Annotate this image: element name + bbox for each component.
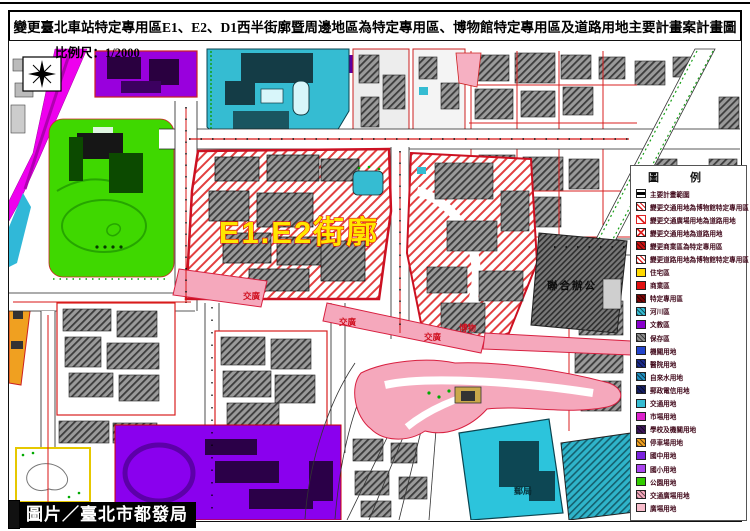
- legend-swatch-icon: [636, 281, 646, 290]
- legend: 圖 例 主要計畫範圍變更交通用地為博物館特定專用區變更交通廣場用地為道路用地變更…: [630, 165, 747, 521]
- legend-item-label: 特定專用區: [650, 293, 683, 303]
- legend-swatch-icon: [636, 215, 646, 224]
- legend-swatch-icon: [636, 490, 646, 499]
- legend-item: 郵政電信用地: [636, 383, 746, 396]
- legend-item: 學校及機關用地: [636, 423, 746, 436]
- legend-item-label: 交通用地: [650, 398, 676, 408]
- city-fabric-bottom-left: [57, 303, 327, 443]
- blocks-right-of-station: [353, 49, 481, 135]
- legend-item: 商業區: [636, 279, 746, 292]
- legend-item-label: 保存區: [650, 333, 670, 343]
- legend-swatch-icon: [636, 372, 646, 381]
- legend-item: 變更交通廣場用地為道路用地: [636, 213, 746, 226]
- legend-item-label: 河川區: [650, 306, 670, 316]
- legend-item: 特定專用區: [636, 292, 746, 305]
- pond-icon: [353, 171, 383, 195]
- legend-item-label: 國中用地: [650, 450, 676, 460]
- legend-item-label: 醫院用地: [650, 359, 676, 369]
- legend-item: 變更商業區為特定專用區: [636, 239, 746, 252]
- credit-notch: [8, 500, 20, 529]
- legend-item-label: 變更交通用地為道路用地: [650, 228, 723, 238]
- legend-swatch-icon: [636, 346, 646, 355]
- legend-item: 保存區: [636, 331, 746, 344]
- transport-plaza-label: 交廣: [243, 291, 261, 301]
- legend-item: 變更道路用地為博物館特定專用區: [636, 252, 746, 265]
- legend-item-label: 停車場用地: [650, 437, 683, 447]
- legend-item: 主要計畫範圍: [636, 187, 746, 200]
- legend-item-label: 變更商業區為特定專用區: [650, 241, 723, 251]
- legend-swatch-icon: [636, 412, 646, 421]
- legend-item: 國小用地: [636, 462, 746, 475]
- museum-block: [407, 153, 537, 347]
- legend-item: 醫院用地: [636, 357, 746, 370]
- legend-item-label: 郵政電信用地: [650, 385, 690, 395]
- joint-office-label: 聯合辦公: [547, 279, 597, 292]
- legend-item: 變更交通用地為博物館特定專用區: [636, 200, 746, 213]
- legend-item-label: 交通廣場用地: [650, 490, 690, 500]
- post-office-block: [459, 419, 563, 520]
- credit-badge: 圖片／臺北市都發局: [20, 502, 196, 528]
- park-area: [49, 119, 174, 279]
- legend-swatch-icon: [636, 503, 646, 512]
- legend-item: 河川區: [636, 305, 746, 318]
- e1e2-block-label: E1.E2街廓: [219, 215, 379, 250]
- legend-item: 機關用地: [636, 344, 746, 357]
- scale-label: 比例尺：1/2000: [55, 42, 140, 61]
- transport-plaza-label: 交廣: [339, 317, 357, 327]
- legend-item: 自來水用地: [636, 370, 746, 383]
- legend-title: 圖 例: [636, 169, 746, 185]
- legend-swatch-icon: [636, 438, 646, 447]
- north-arrow-icon: [23, 57, 61, 91]
- legend-item-label: 文教區: [650, 319, 670, 329]
- station-block-cyan: [207, 49, 349, 141]
- legend-swatch-icon: [636, 333, 646, 342]
- legend-item-label: 變更交通用地為博物館特定專用區: [650, 202, 749, 212]
- legend-swatch-icon: [636, 294, 646, 303]
- legend-item: 住宅區: [636, 266, 746, 279]
- legend-swatch-icon: [636, 359, 646, 368]
- legend-item-label: 主要計畫範圍: [650, 189, 690, 199]
- legend-item: 公園用地: [636, 475, 746, 488]
- legend-swatch-icon: [636, 385, 646, 394]
- legend-rows: 主要計畫範圍變更交通用地為博物館特定專用區變更交通廣場用地為道路用地變更交通用地…: [636, 187, 746, 514]
- legend-item: 市場用地: [636, 410, 746, 423]
- legend-item-label: 自來水用地: [650, 372, 683, 382]
- legend-swatch-icon: [636, 307, 646, 316]
- legend-swatch-icon: [636, 202, 646, 211]
- legend-swatch-icon: [636, 399, 646, 408]
- legend-item-label: 國小用地: [650, 464, 676, 474]
- legend-item-label: 學校及機關用地: [650, 424, 696, 434]
- legend-item-label: 廣場用地: [650, 503, 676, 513]
- legend-swatch-icon: [636, 268, 646, 277]
- legend-item: 停車場用地: [636, 436, 746, 449]
- museum-label: 博物: [459, 323, 477, 333]
- legend-item: 交通用地: [636, 397, 746, 410]
- legend-swatch-icon: [636, 425, 646, 434]
- page-title: 變更臺北車站特定專用區E1、E2、D1西半街廓暨周邊地區為特定專用區、博物館特定…: [13, 16, 736, 36]
- legend-item-label: 住宅區: [650, 267, 670, 277]
- legend-swatch-icon: [636, 241, 646, 250]
- legend-item-label: 市場用地: [650, 411, 676, 421]
- title-bar: 變更臺北車站特定專用區E1、E2、D1西半街廓暨周邊地區為特定專用區、博物館特定…: [8, 10, 742, 42]
- transport-plaza-label: 交廣: [424, 332, 442, 342]
- legend-swatch-icon: [636, 464, 646, 473]
- legend-swatch-icon: [636, 255, 646, 264]
- orange-strip-building: [13, 311, 23, 319]
- legend-swatch-icon: [636, 189, 646, 198]
- legend-swatch-icon: [636, 477, 646, 486]
- legend-item: 廣場用地: [636, 501, 746, 514]
- post-office-label: 郵局: [514, 485, 532, 496]
- legend-swatch-icon: [636, 320, 646, 329]
- legend-item: 國中用地: [636, 449, 746, 462]
- top-border-line: [0, 2, 750, 4]
- legend-item-label: 變更道路用地為博物館特定專用區: [650, 254, 749, 264]
- legend-item-label: 機關用地: [650, 346, 676, 356]
- legend-item-label: 商業區: [650, 280, 670, 290]
- legend-item: 交通廣場用地: [636, 488, 746, 501]
- legend-item: 變更交通用地為道路用地: [636, 226, 746, 239]
- pond-block: [16, 448, 90, 502]
- orange-strip-building: [11, 341, 23, 349]
- legend-item-label: 變更交通廣場用地為道路用地: [650, 215, 736, 225]
- legend-item-label: 公園用地: [650, 477, 676, 487]
- legend-swatch-icon: [636, 451, 646, 460]
- plan-map-page: 變更臺北車站特定專用區E1、E2、D1西半街廓暨周邊地區為特定專用區、博物館特定…: [0, 0, 750, 531]
- legend-swatch-icon: [636, 228, 646, 237]
- legend-item: 文教區: [636, 318, 746, 331]
